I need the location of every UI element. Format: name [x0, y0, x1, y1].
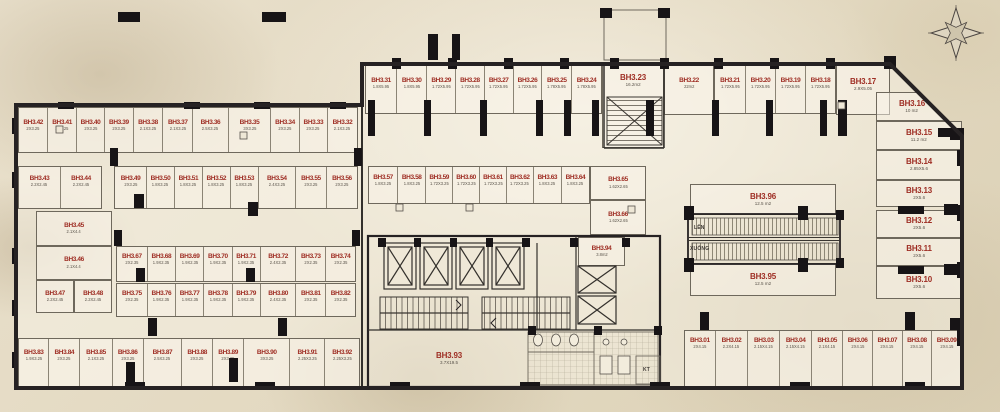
unit-id-label: BH3.26	[518, 77, 538, 84]
unit-dim-label: 12.5 m2	[755, 281, 771, 286]
unit-BH3.06: BH3.062X4.15	[842, 331, 872, 386]
unit-id-label: BH3.51	[179, 175, 199, 182]
unit-BH3.58: BH3.581.8X3.25	[397, 167, 425, 203]
unit-id-label: BH3.93	[436, 351, 462, 360]
unit-dim-label: 2.5X3.25	[202, 127, 218, 132]
unit-id-label: BH3.85	[86, 349, 106, 356]
unit-BH3.37: BH3.372.1X3.25	[162, 108, 192, 152]
unit-BH3.43: BH3.432.2X2.45	[19, 167, 60, 208]
unit-id-label: BH3.86	[118, 349, 138, 356]
unit-BH3.18: BH3.181.72X5.95	[805, 65, 835, 113]
unit-id-label: BH3.94	[592, 245, 612, 252]
unit-dim-label: 1.9X2.35	[181, 298, 197, 303]
unit-row-left-row2b: BH3.492X3.25BH3.501.8X3.25BH3.511.8X3.25…	[114, 166, 358, 209]
unit-BH3.08: BH3.082X4.15	[902, 331, 932, 386]
unit-BH3.88: BH3.882X3.25	[181, 339, 212, 386]
unit-id-label: BH3.24	[577, 77, 597, 84]
unit-id-label: BH3.32	[333, 119, 353, 126]
unit-dim-label: 1.62X2.65	[609, 219, 628, 224]
unit-id-label: BH3.45	[64, 222, 84, 229]
unit-dim-label: 1.72X3.25	[510, 182, 529, 187]
unit-id-label: BH3.49	[121, 175, 141, 182]
unit-dim-label: 1.78X5.95	[577, 85, 596, 90]
unit-dim-label: 2X3.25	[124, 183, 137, 188]
unit-BH3.93: BH3.933.7X19.5	[372, 334, 526, 384]
unit-dim-label: 2X4.15	[910, 345, 923, 350]
unit-id-label: BH3.88	[187, 349, 207, 356]
unit-id-label: BH3.80	[268, 290, 288, 297]
unit-id-label: BH3.55	[301, 175, 321, 182]
unit-dim-label: 2X5.6	[913, 254, 925, 259]
unit-id-label: BH3.62	[510, 174, 530, 181]
unit-BH3.21: BH3.211.72X5.95	[715, 65, 745, 113]
unit-id-label: BH3.60	[456, 174, 476, 181]
unit-dim-label: 1.9X2.35	[210, 261, 226, 266]
unit-id-label: BH3.03	[754, 337, 774, 344]
unit-id-label: BH3.53	[234, 175, 254, 182]
unit-id-label: BH3.22	[679, 77, 699, 84]
unit-BH3.38: BH3.382.1X3.25	[133, 108, 163, 152]
unit-id-label: BH3.74	[331, 253, 351, 260]
unit-id-label: BH3.12	[906, 216, 932, 225]
unit-dim-label: 2X3.25	[121, 357, 134, 362]
unit-BH3.12: BH3.122X5.6	[876, 210, 962, 238]
unit-dim-label: 2X4.15	[851, 345, 864, 350]
unit-id-label: BH3.04	[786, 337, 806, 344]
unit-row-bottom-left: BH3.831.9X3.25BH3.842X3.25BH3.852.1X3.25…	[18, 338, 360, 387]
unit-dim-label: 2.2X2.45	[73, 183, 89, 188]
unit-BH3.59: BH3.591.72X3.25	[425, 167, 452, 203]
unit-dim-label: 2.1X4.4	[67, 264, 81, 269]
unit-BH3.05: BH3.052.1X4.15	[811, 331, 842, 386]
unit-dim-label: 1.8X5.95	[403, 85, 419, 90]
unit-id-label: BH3.91	[297, 349, 317, 356]
unit-id-label: BH3.15	[906, 128, 932, 137]
unit-dim-label: 2X3.25	[191, 357, 204, 362]
unit-dim-label: 2X4.15	[881, 345, 894, 350]
unit-id-label: BH3.02	[722, 337, 742, 344]
unit-BH3.64: BH3.641.8X3.25	[561, 167, 589, 203]
unit-dim-label: 1.72X5.95	[432, 85, 451, 90]
unit-id-label: BH3.33	[304, 119, 324, 126]
unit-BH3.32: BH3.322.1X3.25	[327, 108, 357, 152]
unit-BH3.94: BH3.943.8m2	[578, 237, 625, 266]
unit-BH3.69: BH3.691.9X2.35	[175, 247, 203, 281]
unit-BH3.55: BH3.552X3.25	[295, 167, 326, 208]
unit-dim-label: 2X5.6	[913, 195, 925, 200]
unit-BH3.62: BH3.621.72X3.25	[506, 167, 533, 203]
unit-BH3.03: BH3.032.15X4.15	[747, 331, 779, 386]
unit-dim-label: 2.4X2.35	[270, 261, 286, 266]
unit-dim-label: 1.72X5.95	[518, 85, 537, 90]
unit-BH3.02: BH3.022.2X4.15	[715, 331, 748, 386]
unit-id-label: BH3.63	[537, 174, 557, 181]
unit-BH3.04: BH3.042.15X4.15	[779, 331, 811, 386]
unit-id-label: BH3.81	[301, 290, 321, 297]
unit-dim-label: 2.2X4.15	[723, 345, 739, 350]
unit-BH3.27: BH3.271.72X5.95	[484, 65, 513, 113]
unit-row-mid-row: BH3.571.8X3.25BH3.581.8X3.25BH3.591.72X3…	[368, 166, 590, 204]
unit-BH3.40: BH3.402X3.25	[76, 108, 104, 152]
unit-dim-label: 1.9X2.35	[238, 298, 254, 303]
unit-BH3.07: BH3.072X4.15	[872, 331, 902, 386]
unit-dim-label: 1.8X3.25	[152, 183, 168, 188]
unit-id-label: BH3.96	[750, 192, 776, 201]
unit-dim-label: 2.1X4.15	[819, 345, 835, 350]
unit-id-label: BH3.28	[460, 77, 480, 84]
unit-id-label: BH3.46	[64, 256, 84, 263]
unit-layer: BH3.311.8X5.95BH3.301.8X5.95BH3.291.72X5…	[0, 0, 1000, 412]
unit-BH3.79: BH3.791.9X2.35	[232, 284, 260, 316]
unit-BH3.90: BH3.903X3.25	[243, 339, 289, 386]
unit-BH3.76: BH3.761.9X2.35	[147, 284, 175, 316]
unit-BH3.92: BH3.922.25X3.25	[324, 339, 359, 386]
unit-id-label: BH3.36	[201, 119, 221, 126]
unit-dim-label: 2.9X5.05	[854, 87, 872, 92]
unit-BH3.84: BH3.842X3.25	[48, 339, 79, 386]
unit-id-label: BH3.64	[566, 174, 586, 181]
unit-BH3.42: BH3.422X3.25	[19, 108, 47, 152]
unit-id-label: BH3.69	[180, 253, 200, 260]
unit-id-label: BH3.44	[71, 175, 91, 182]
unit-BH3.53: BH3.531.8X3.25	[230, 167, 258, 208]
unit-row-top-mid-left: BH3.311.8X5.95BH3.301.8X5.95BH3.291.72X5…	[365, 64, 602, 114]
unit-id-label: BH3.40	[81, 119, 101, 126]
unit-id-label: BH3.16	[899, 99, 925, 108]
unit-dim-label: 16.2m2	[625, 83, 640, 88]
unit-BH3.96: BH3.9612.5 m2	[690, 184, 836, 215]
unit-dim-label: 2.85X5.6	[910, 167, 928, 172]
unit-id-label: BH3.34	[275, 119, 295, 126]
unit-BH3.23: BH3.2316.2m2	[602, 64, 664, 148]
unit-id-label: BH3.20	[751, 77, 771, 84]
unit-BH3.83: BH3.831.9X3.25	[19, 339, 48, 386]
unit-id-label: BH3.31	[371, 77, 391, 84]
unit-BH3.57: BH3.571.8X3.25	[369, 167, 397, 203]
unit-id-label: BH3.25	[547, 77, 567, 84]
unit-dim-label: 2.15X4.15	[786, 345, 805, 350]
unit-dim-label: 2.15X4.15	[754, 345, 773, 350]
unit-dim-label: 2.2X2.45	[85, 298, 101, 303]
unit-row-top-mid-right: BH3.211.72X5.95BH3.201.72X5.95BH3.191.72…	[714, 64, 836, 114]
unit-BH3.85: BH3.852.1X3.25	[79, 339, 111, 386]
unit-dim-label: 2.5X3.25	[154, 357, 170, 362]
unit-dim-label: 2X3.25	[307, 127, 320, 132]
unit-BH3.86: BH3.862X3.25	[112, 339, 143, 386]
unit-dim-label: 3X3.25	[243, 127, 256, 132]
unit-id-label: BH3.06	[848, 337, 868, 344]
unit-id-label: BH3.65	[608, 176, 628, 183]
unit-dim-label: 1.8X3.25	[236, 183, 252, 188]
unit-BH3.13: BH3.132X5.6	[876, 180, 962, 207]
unit-dim-label: 2.2X2.45	[47, 298, 63, 303]
unit-id-label: BH3.11	[906, 244, 931, 253]
unit-id-label: BH3.87	[153, 349, 173, 356]
unit-BH3.20: BH3.201.72X5.95	[745, 65, 775, 113]
unit-dim-label: 2X5.6	[913, 284, 925, 289]
unit-dim-label: 1.9X2.35	[181, 261, 197, 266]
unit-BH3.95: BH3.9512.5 m2	[690, 263, 836, 296]
unit-BH3.41: BH3.412X3.25	[47, 108, 75, 152]
unit-dim-label: 1.8X5.95	[373, 85, 389, 90]
unit-dim-label: 10 m2	[906, 108, 919, 113]
unit-id-label: BH3.18	[811, 77, 831, 84]
unit-dim-label: 2X2.35	[304, 261, 317, 266]
unit-BH3.14: BH3.142.85X5.6	[876, 150, 962, 180]
unit-dim-label: 11.2 m2	[911, 137, 927, 142]
unit-dim-label: 2X3.25	[304, 183, 317, 188]
unit-BH3.72: BH3.722.4X2.35	[260, 247, 296, 281]
unit-dim-label: 2X3.25	[222, 357, 235, 362]
unit-id-label: BH3.42	[23, 119, 43, 126]
unit-id-label: BH3.23	[620, 73, 646, 82]
unit-BH3.25: BH3.251.78X5.95	[541, 65, 571, 113]
unit-BH3.31: BH3.311.8X5.95	[366, 65, 396, 113]
unit-dim-label: 1.8X3.25	[567, 182, 583, 187]
unit-BH3.89: BH3.892X3.25	[212, 339, 243, 386]
unit-id-label: BH3.92	[332, 349, 352, 356]
unit-id-label: BH3.79	[236, 290, 256, 297]
unit-row-left-row1: BH3.422X3.25BH3.412X3.25BH3.402X3.25BH3.…	[18, 107, 358, 153]
unit-dim-label: 1.72X3.25	[430, 182, 449, 187]
unit-dim-label: 2.1X3.25	[170, 127, 186, 132]
unit-id-label: BH3.66	[608, 211, 628, 218]
unit-dim-label: 1.8X3.25	[539, 182, 555, 187]
unit-BH3.66: BH3.661.62X2.65	[590, 200, 646, 235]
unit-dim-label: 1.9X2.35	[210, 298, 226, 303]
unit-BH3.70: BH3.701.9X2.35	[203, 247, 231, 281]
unit-id-label: BH3.50	[151, 175, 171, 182]
unit-id-label: BH3.83	[24, 349, 44, 356]
unit-id-label: BH3.72	[268, 253, 288, 260]
unit-dim-label: 1.72X3.25	[457, 182, 476, 187]
unit-BH3.26: BH3.261.72X5.95	[513, 65, 542, 113]
unit-dim-label: 1.9X3.25	[25, 357, 41, 362]
unit-dim-label: 2X2.35	[334, 261, 347, 266]
unit-BH3.81: BH3.812X2.35	[295, 284, 325, 316]
unit-id-label: BH3.56	[332, 175, 352, 182]
unit-id-label: BH3.14	[906, 157, 932, 166]
unit-dim-label: 2X4.15	[693, 345, 706, 350]
unit-id-label: BH3.07	[877, 337, 897, 344]
unit-dim-label: 2X4.15	[940, 345, 953, 350]
unit-BH3.33: BH3.332X3.25	[299, 108, 327, 152]
unit-dim-label: 1.62X2.65	[609, 184, 628, 189]
unit-BH3.77: BH3.771.9X2.35	[175, 284, 203, 316]
unit-id-label: BH3.77	[180, 290, 200, 297]
unit-BH3.15: BH3.1511.2 m2	[876, 121, 962, 150]
unit-id-label: BH3.27	[489, 77, 509, 84]
unit-dim-label: 1.72X5.95	[751, 85, 770, 90]
unit-id-label: BH3.39	[109, 119, 129, 126]
unit-dim-label: 1.8X3.25	[403, 182, 419, 187]
unit-id-label: BH3.09	[937, 337, 957, 344]
unit-id-label: BH3.89	[218, 349, 238, 356]
unit-dim-label: 1.8X3.25	[180, 183, 196, 188]
unit-BH3.65: BH3.651.62X2.65	[590, 166, 646, 200]
unit-BH3.16: BH3.1610 m2	[876, 92, 948, 121]
unit-dim-label: 2X3.25	[278, 127, 291, 132]
floor-plan-page: BH3.311.8X5.95BH3.301.8X5.95BH3.291.72X5…	[0, 0, 1000, 412]
unit-dim-label: 2X3.25	[112, 127, 125, 132]
unit-id-label: BH3.37	[168, 119, 188, 126]
unit-dim-label: 1.8X3.25	[375, 182, 391, 187]
unit-id-label: BH3.35	[240, 119, 260, 126]
unit-dim-label: 2.25X3.25	[298, 357, 317, 362]
unit-BH3.44: BH3.442.2X2.45	[60, 167, 101, 208]
unit-dim-label: 2.1X3.25	[334, 127, 350, 132]
unit-dim-label: 2X3.25	[58, 357, 71, 362]
unit-BH3.29: BH3.291.72X5.95	[426, 65, 455, 113]
unit-BH3.39: BH3.392X3.25	[104, 108, 132, 152]
unit-id-label: BH3.73	[301, 253, 321, 260]
unit-BH3.28: BH3.281.72X5.95	[455, 65, 484, 113]
unit-row-bottom-right: BH3.012X4.15BH3.022.2X4.15BH3.032.15X4.1…	[684, 330, 962, 387]
unit-dim-label: 1.72X3.25	[484, 182, 503, 187]
unit-id-label: BH3.19	[781, 77, 801, 84]
unit-dim-label: 1.9X2.35	[153, 298, 169, 303]
unit-row-row4: BH3.752X2.35BH3.761.9X2.35BH3.771.9X2.35…	[116, 283, 356, 317]
unit-id-label: BH3.67	[122, 253, 142, 260]
unit-BH3.60: BH3.601.72X3.25	[452, 167, 479, 203]
unit-id-label: BH3.78	[208, 290, 228, 297]
unit-BH3.09: BH3.092X4.15	[931, 331, 961, 386]
unit-dim-label: 12.5 m2	[755, 201, 771, 206]
unit-BH3.48: BH3.482.2X2.45	[74, 280, 112, 313]
unit-id-label: BH3.90	[257, 349, 277, 356]
unit-BH3.87: BH3.872.5X3.25	[143, 339, 182, 386]
unit-BH3.52: BH3.521.8X3.25	[202, 167, 230, 208]
unit-BH3.74: BH3.742X2.35	[325, 247, 355, 281]
unit-id-label: BH3.84	[54, 349, 74, 356]
unit-BH3.91: BH3.912.25X3.25	[289, 339, 324, 386]
unit-id-label: BH3.59	[429, 174, 449, 181]
unit-id-label: BH3.05	[817, 337, 837, 344]
unit-BH3.56: BH3.562X3.25	[326, 167, 357, 208]
unit-BH3.82: BH3.822X2.35	[325, 284, 355, 316]
unit-dim-label: 2.4X2.35	[270, 298, 286, 303]
unit-dim-label: 2X3.25	[335, 183, 348, 188]
unit-id-label: BH3.75	[122, 290, 142, 297]
unit-id-label: BH3.82	[331, 290, 351, 297]
unit-BH3.68: BH3.681.9X2.35	[147, 247, 175, 281]
unit-BH3.34: BH3.342X3.25	[270, 108, 298, 152]
unit-dim-label: 3.7X19.5	[440, 361, 458, 366]
unit-id-label: BH3.71	[236, 253, 256, 260]
unit-id-label: BH3.21	[720, 77, 740, 84]
unit-dim-label: 2.4X3.25	[269, 183, 285, 188]
unit-dim-label: 2.1X3.25	[88, 357, 104, 362]
unit-BH3.50: BH3.501.8X3.25	[146, 167, 174, 208]
unit-BH3.19: BH3.191.72X5.95	[775, 65, 805, 113]
unit-dim-label: 1.78X5.95	[547, 85, 566, 90]
unit-id-label: BH3.10	[906, 275, 932, 284]
unit-id-label: BH3.68	[152, 253, 172, 260]
unit-dim-label: 3.8m2	[596, 253, 607, 258]
unit-dim-label: 1.72X5.95	[721, 85, 740, 90]
unit-BH3.78: BH3.781.9X2.35	[203, 284, 231, 316]
unit-id-label: BH3.17	[850, 77, 876, 86]
unit-id-label: BH3.01	[690, 337, 710, 344]
unit-dim-label: 2X3.25	[84, 127, 97, 132]
unit-id-label: BH3.13	[906, 186, 932, 195]
unit-dim-label: 2X2.35	[125, 298, 138, 303]
unit-id-label: BH3.43	[30, 175, 50, 182]
unit-id-label: BH3.54	[267, 175, 287, 182]
unit-id-label: BH3.58	[402, 174, 422, 181]
unit-dim-label: 2X2.35	[125, 261, 138, 266]
unit-BH3.46: BH3.462.1X4.4	[36, 246, 112, 280]
unit-row-row3: BH3.672X2.35BH3.681.9X2.35BH3.691.9X2.35…	[116, 246, 356, 282]
unit-dim-label: 2X3.25	[27, 127, 40, 132]
unit-id-label: BH3.70	[208, 253, 228, 260]
unit-id-label: BH3.57	[373, 174, 393, 181]
unit-dim-label: 1.72X5.95	[781, 85, 800, 90]
unit-id-label: BH3.76	[152, 290, 172, 297]
unit-dim-label: 1.9X2.35	[153, 261, 169, 266]
unit-BH3.22: BH3.2222m2	[664, 64, 714, 115]
unit-dim-label: 2.1X3.25	[140, 127, 156, 132]
unit-BH3.49: BH3.492X3.25	[115, 167, 146, 208]
unit-row-left-row2a: BH3.432.2X2.45BH3.442.2X2.45	[18, 166, 102, 209]
unit-BH3.80: BH3.802.4X2.35	[260, 284, 296, 316]
unit-dim-label: 2X2.35	[304, 298, 317, 303]
unit-dim-label: 2.2X2.45	[31, 183, 47, 188]
unit-dim-label: 2X3.25	[56, 127, 69, 132]
unit-dim-label: 2.25X3.25	[333, 357, 352, 362]
unit-dim-label: 22m2	[684, 85, 694, 90]
unit-BH3.24: BH3.241.78X5.95	[571, 65, 601, 113]
unit-id-label: BH3.38	[138, 119, 158, 126]
unit-dim-label: 2X5.6	[913, 226, 925, 231]
unit-id-label: BH3.61	[483, 174, 503, 181]
unit-BH3.11: BH3.112X5.6	[876, 238, 962, 266]
unit-BH3.01: BH3.012X4.15	[685, 331, 715, 386]
unit-dim-label: 2.1X4.4	[67, 230, 81, 235]
unit-id-label: BH3.30	[402, 77, 422, 84]
unit-BH3.63: BH3.631.8X3.25	[533, 167, 561, 203]
unit-id-label: BH3.47	[45, 290, 65, 297]
unit-BH3.10: BH3.102X5.6	[876, 266, 962, 299]
unit-dim-label: 1.72X5.95	[811, 85, 830, 90]
unit-dim-label: 2X2.35	[334, 298, 347, 303]
unit-BH3.36: BH3.362.5X3.25	[192, 108, 228, 152]
unit-BH3.71: BH3.711.9X2.35	[232, 247, 260, 281]
unit-BH3.67: BH3.672X2.35	[117, 247, 147, 281]
unit-dim-label: 1.72X5.95	[489, 85, 508, 90]
unit-dim-label: 3X3.25	[260, 357, 273, 362]
unit-BH3.45: BH3.452.1X4.4	[36, 211, 112, 246]
unit-BH3.30: BH3.301.8X5.95	[396, 65, 426, 113]
unit-id-label: BH3.48	[83, 290, 103, 297]
unit-BH3.35: BH3.353X3.25	[228, 108, 271, 152]
unit-id-label: BH3.08	[907, 337, 927, 344]
unit-BH3.75: BH3.752X2.35	[117, 284, 147, 316]
unit-id-label: BH3.95	[750, 272, 776, 281]
unit-id-label: BH3.41	[52, 119, 72, 126]
unit-id-label: BH3.29	[431, 77, 451, 84]
unit-BH3.61: BH3.611.72X3.25	[479, 167, 506, 203]
unit-dim-label: 1.72X5.95	[461, 85, 480, 90]
unit-BH3.47: BH3.472.2X2.45	[36, 280, 74, 313]
unit-BH3.73: BH3.732X2.35	[295, 247, 325, 281]
unit-dim-label: 1.9X2.35	[238, 261, 254, 266]
unit-id-label: BH3.52	[207, 175, 227, 182]
unit-BH3.51: BH3.511.8X3.25	[174, 167, 202, 208]
unit-dim-label: 1.8X3.25	[208, 183, 224, 188]
unit-BH3.54: BH3.542.4X3.25	[258, 167, 295, 208]
